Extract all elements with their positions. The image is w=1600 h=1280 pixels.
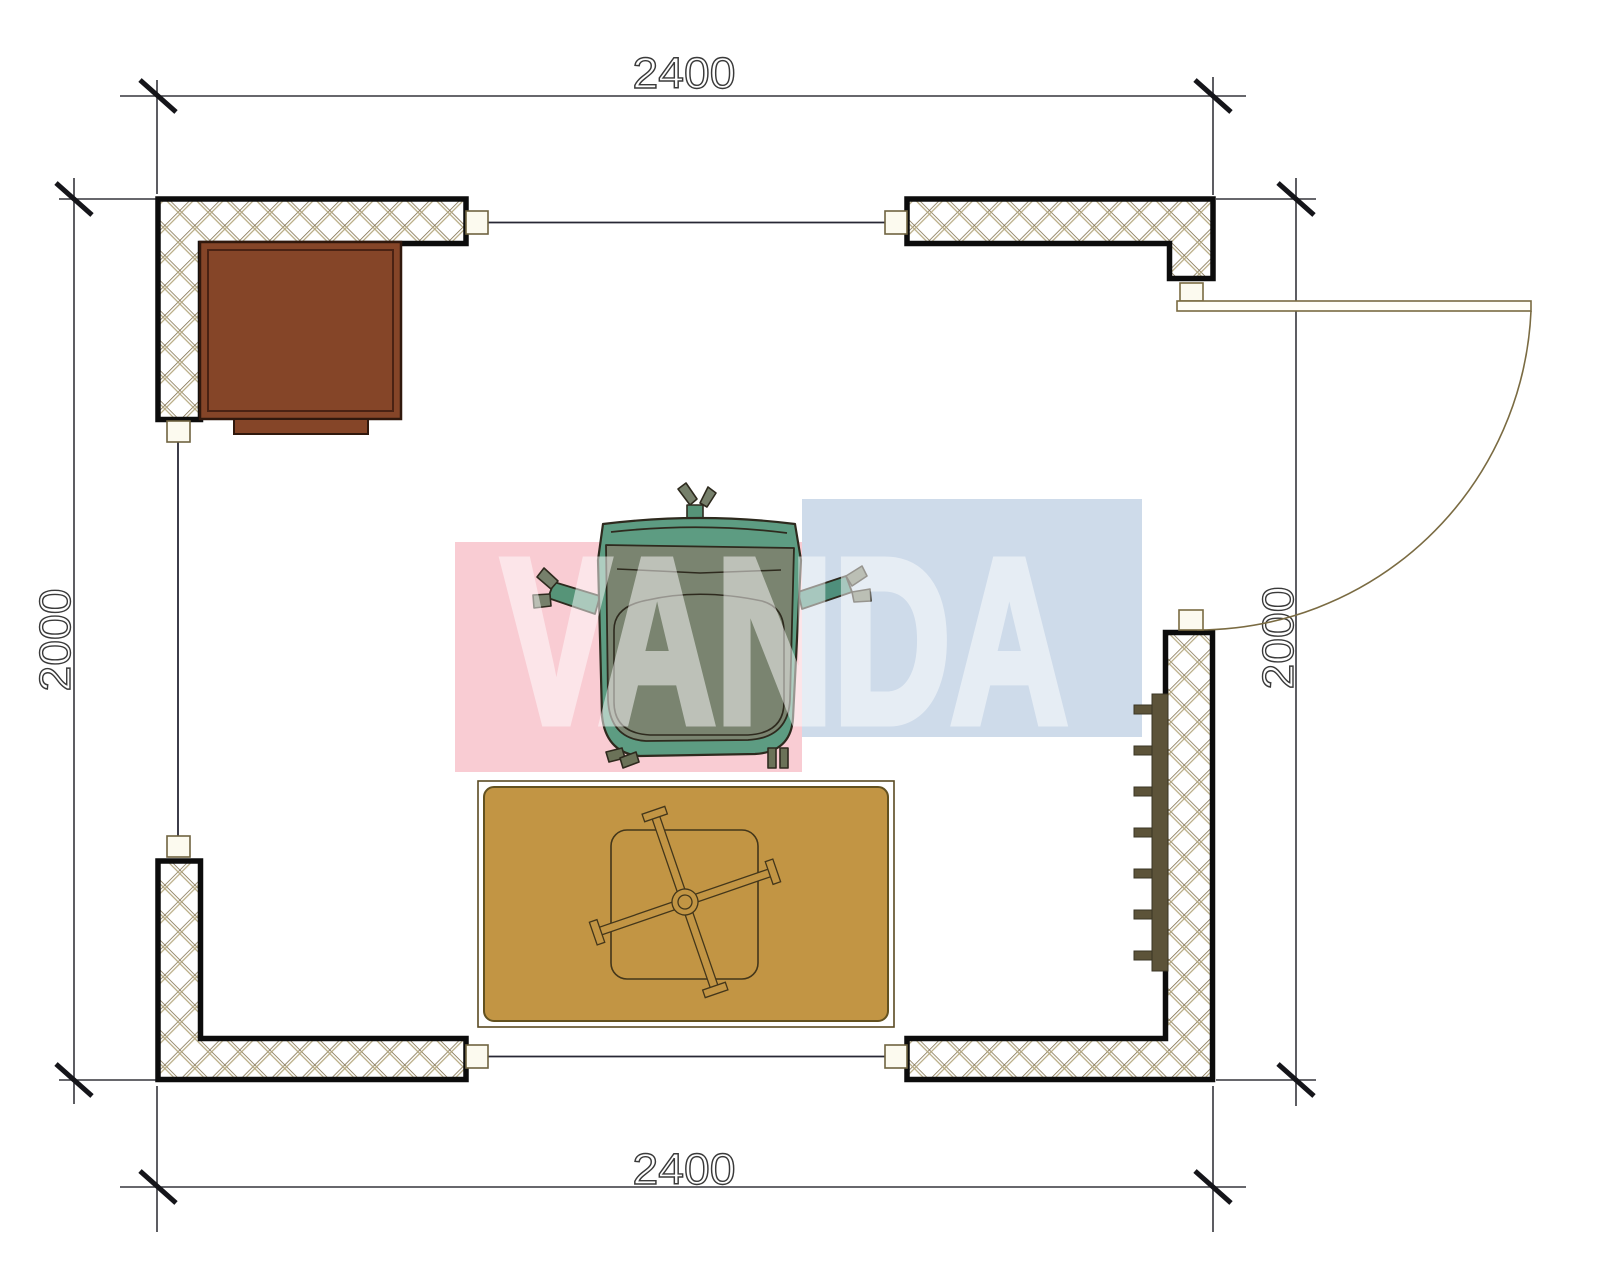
svg-text:2000: 2000: [31, 589, 80, 692]
svg-text:VANDA: VANDA: [502, 510, 1068, 772]
svg-text:2400: 2400: [633, 49, 736, 98]
svg-text:2000: 2000: [1254, 587, 1303, 690]
svg-text:2400: 2400: [633, 1145, 736, 1194]
